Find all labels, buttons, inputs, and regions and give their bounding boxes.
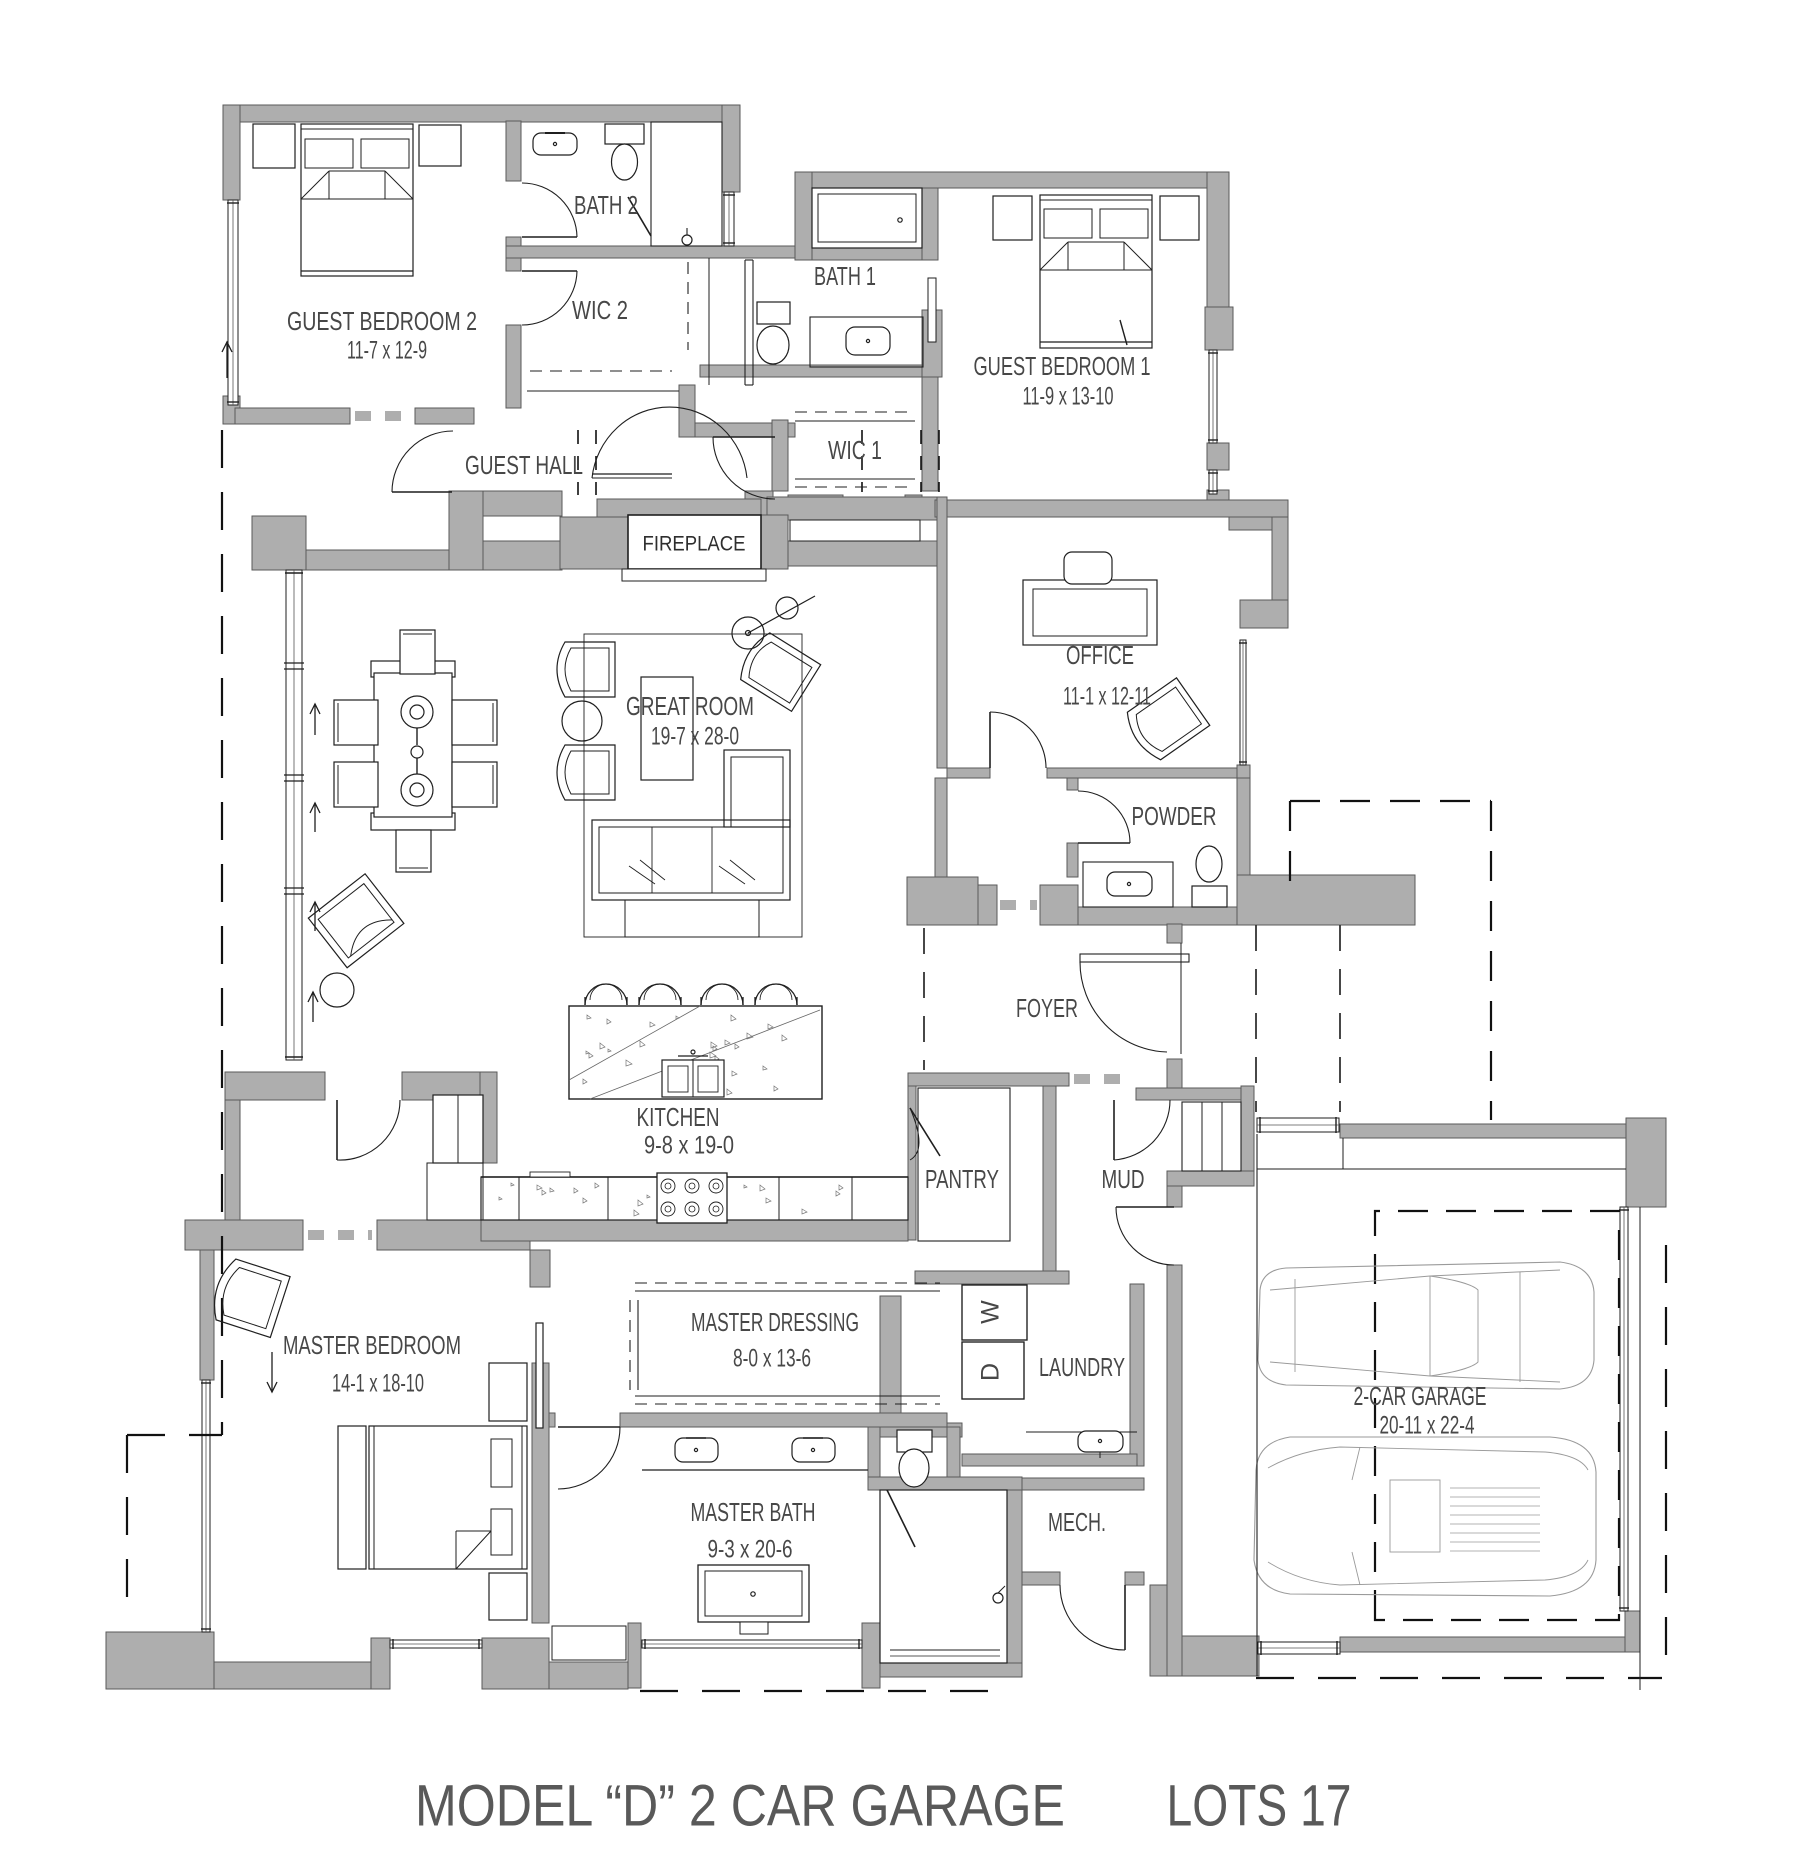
svg-text:MASTER DRESSING: MASTER DRESSING: [691, 1307, 859, 1337]
svg-text:MODEL “D” 2 CAR GARAGE: MODEL “D” 2 CAR GARAGE: [415, 1773, 1065, 1838]
svg-text:19-7 x 28-0: 19-7 x 28-0: [651, 723, 739, 751]
svg-text:11-1 x 12-11: 11-1 x 12-11: [1063, 683, 1151, 711]
svg-text:14-1 x 18-10: 14-1 x 18-10: [332, 1370, 424, 1398]
svg-text:LOTS 17: LOTS 17: [1167, 1773, 1352, 1838]
svg-text:9-3 x 20-6: 9-3 x 20-6: [708, 1536, 793, 1564]
svg-text:PANTRY: PANTRY: [925, 1164, 999, 1194]
svg-text:GREAT ROOM: GREAT ROOM: [626, 691, 754, 721]
svg-text:2-CAR GARAGE: 2-CAR GARAGE: [1354, 1381, 1487, 1411]
svg-text:11-7 x 12-9: 11-7 x 12-9: [347, 337, 427, 365]
svg-text:MASTER BATH: MASTER BATH: [691, 1497, 816, 1527]
svg-text:11-9 x 13-10: 11-9 x 13-10: [1023, 383, 1114, 411]
svg-text:MASTER BEDROOM: MASTER BEDROOM: [283, 1330, 461, 1360]
svg-text:D: D: [977, 1363, 1005, 1381]
svg-text:FIREPLACE: FIREPLACE: [643, 533, 746, 556]
svg-text:GUEST HALL: GUEST HALL: [465, 450, 583, 480]
svg-text:GUEST BEDROOM 1: GUEST BEDROOM 1: [974, 351, 1151, 381]
svg-text:9-8 x 19-0: 9-8 x 19-0: [644, 1132, 734, 1160]
svg-text:BATH 1: BATH 1: [814, 261, 876, 291]
svg-text:GUEST BEDROOM 2: GUEST BEDROOM 2: [287, 306, 477, 336]
svg-text:W: W: [977, 1300, 1005, 1324]
svg-text:20-11 x 22-4: 20-11 x 22-4: [1380, 1412, 1475, 1440]
svg-text:8-0 x 13-6: 8-0 x 13-6: [733, 1345, 811, 1373]
svg-text:WIC 1: WIC 1: [828, 435, 882, 465]
svg-text:OFFICE: OFFICE: [1066, 640, 1134, 670]
svg-text:MUD: MUD: [1102, 1164, 1145, 1194]
svg-text:MECH.: MECH.: [1048, 1507, 1106, 1537]
svg-text:WIC 2: WIC 2: [572, 295, 628, 325]
svg-text:KITCHEN: KITCHEN: [637, 1102, 720, 1132]
svg-text:LAUNDRY: LAUNDRY: [1039, 1352, 1125, 1382]
svg-text:POWDER: POWDER: [1132, 801, 1217, 831]
svg-text:FOYER: FOYER: [1016, 993, 1078, 1023]
svg-text:BATH 2: BATH 2: [574, 190, 638, 220]
